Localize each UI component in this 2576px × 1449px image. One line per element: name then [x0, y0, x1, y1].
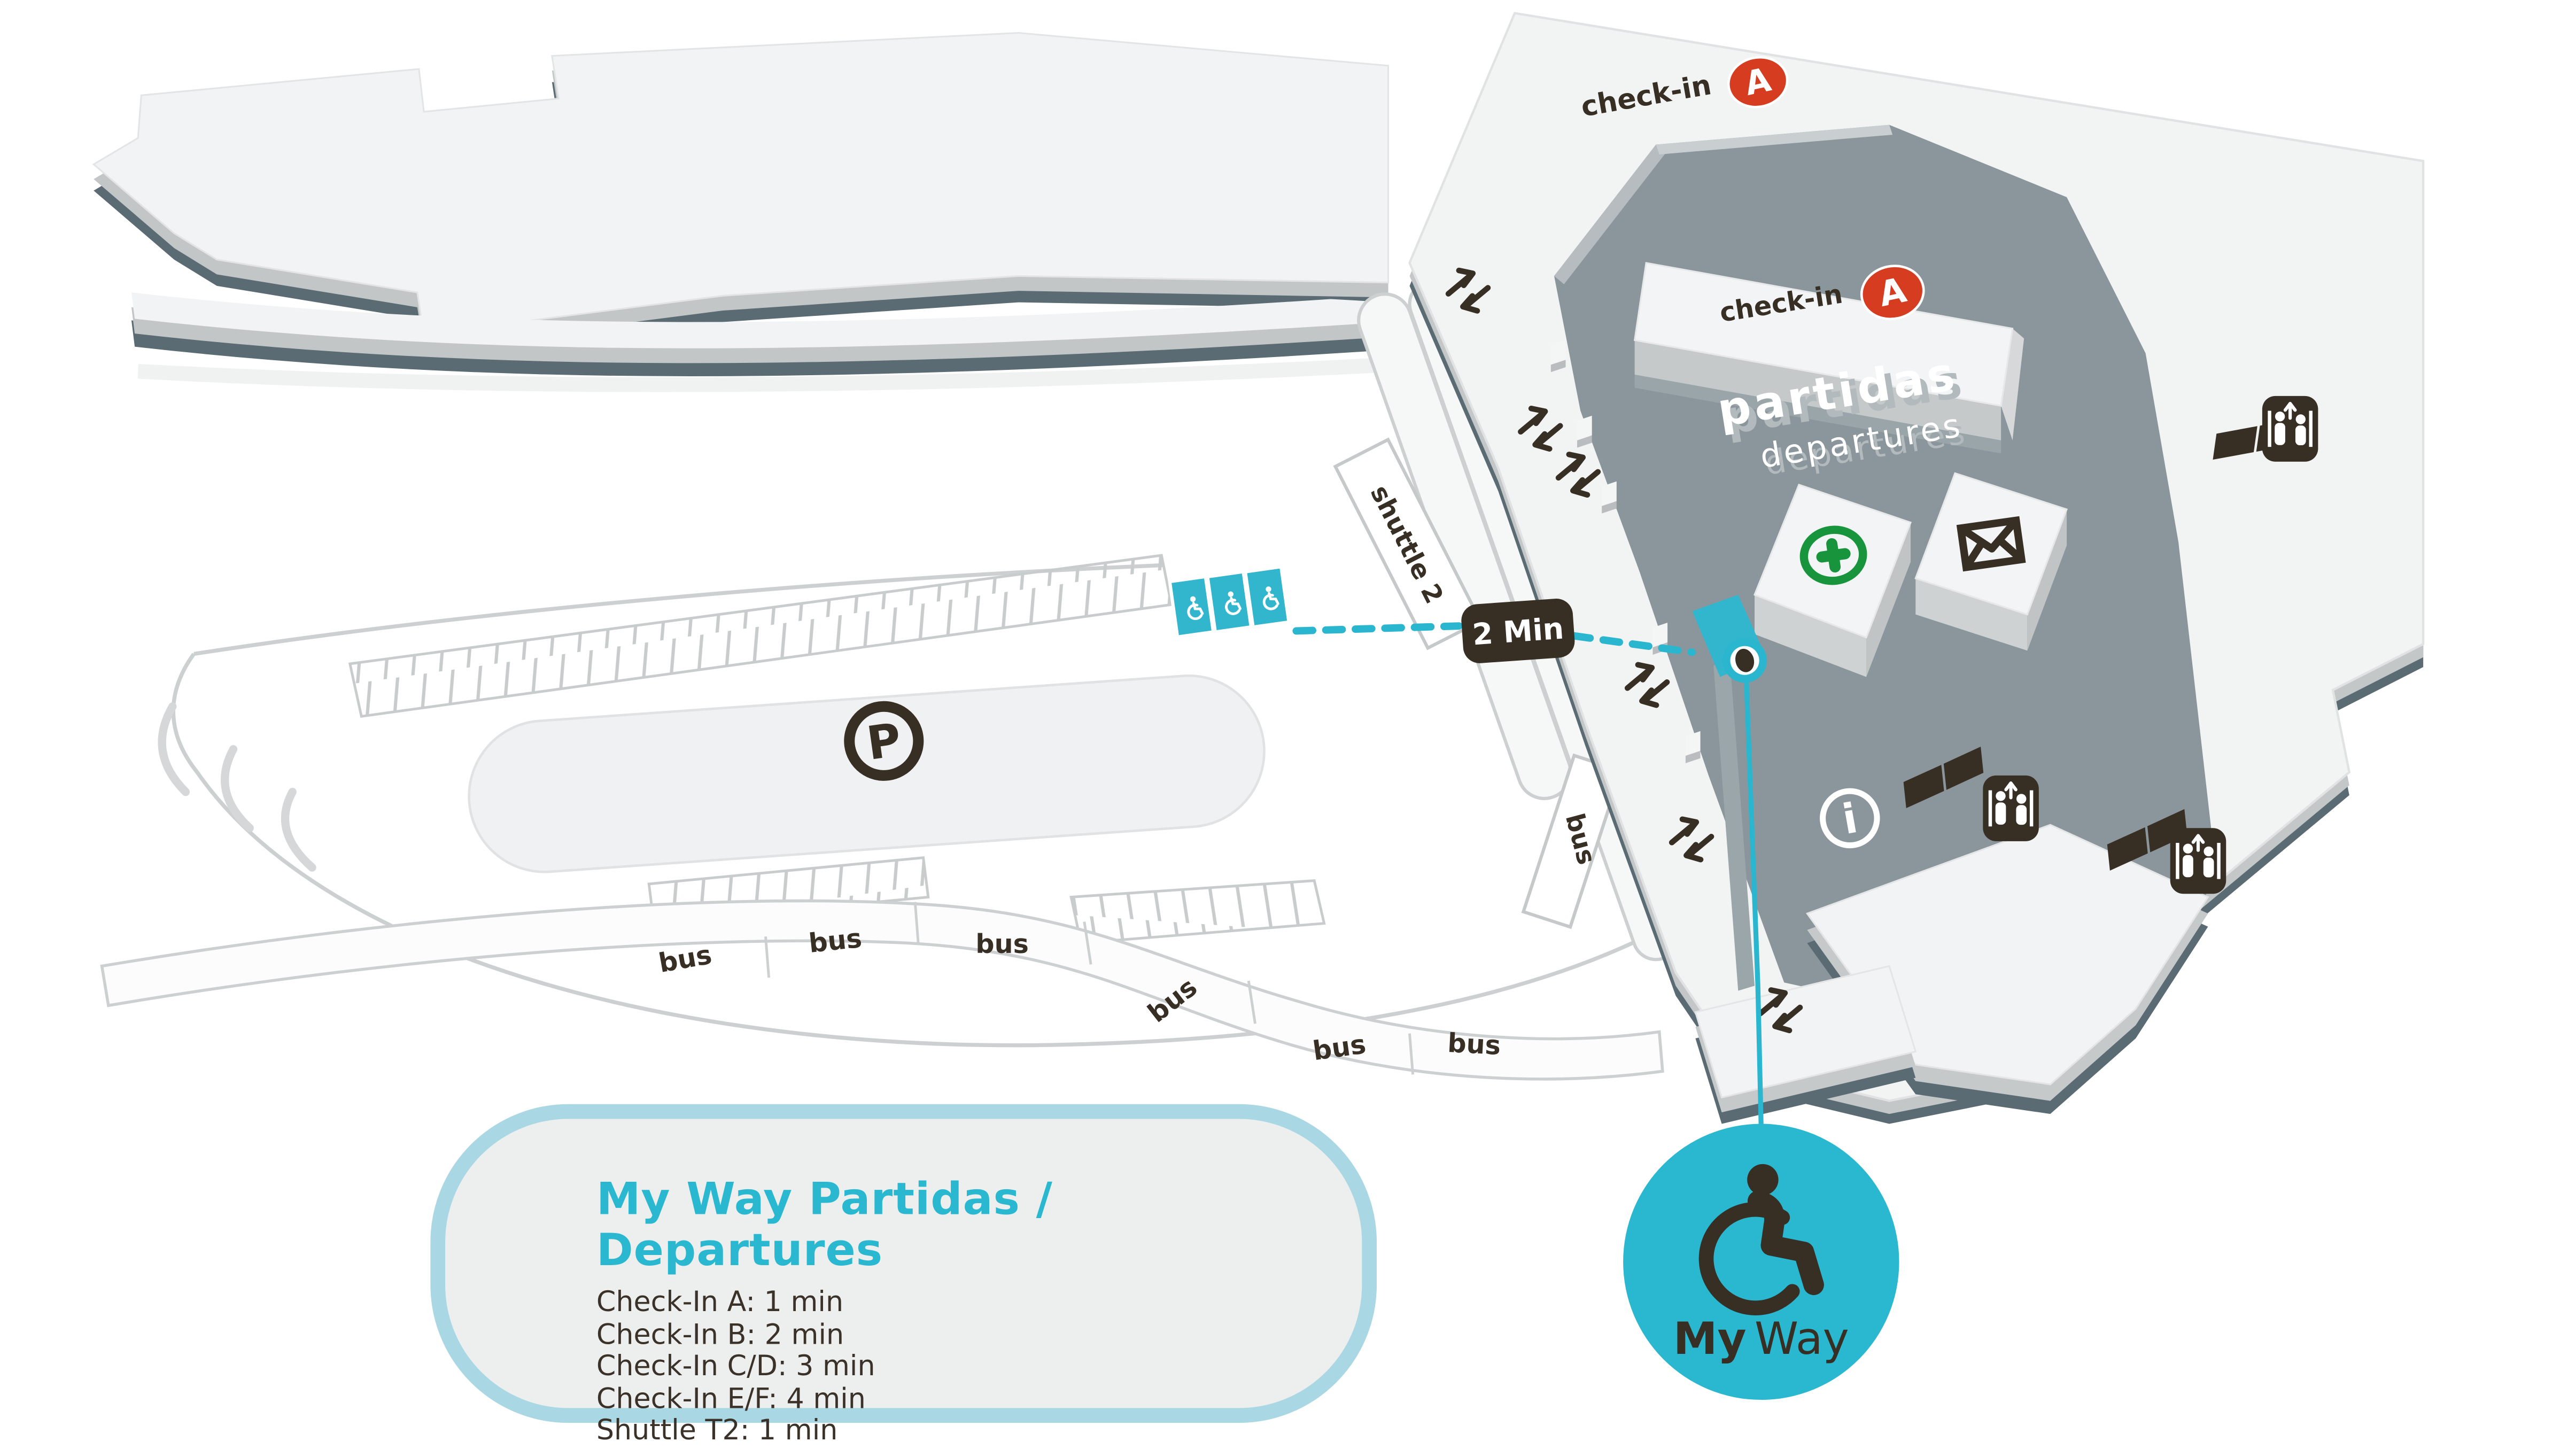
- pillar: [1602, 482, 1617, 514]
- parking-symbol: P: [864, 713, 904, 771]
- bus-stop-label: bus: [807, 923, 863, 959]
- bus-road: bus bus bus bus bus bus: [102, 901, 1663, 1079]
- myway-label-way: Way: [1755, 1313, 1849, 1365]
- accessible-parking-bays: [1170, 567, 1289, 637]
- pillar: [1686, 731, 1701, 763]
- bus-stop-label: bus: [975, 928, 1028, 959]
- myway-label: MyWay: [1673, 1313, 1849, 1365]
- myway-label-my: My: [1673, 1313, 1747, 1365]
- myway-badge: MyWay: [1623, 1124, 1899, 1400]
- legend-item: Check-In E/F: 4 min: [596, 1385, 1313, 1417]
- legend-card: My Way Partidas / Departures Check-In A:…: [430, 1104, 1377, 1423]
- route-time-badge: 2 Min: [1460, 598, 1576, 664]
- legend-item: Check-In A: 1 min: [596, 1288, 1313, 1320]
- airside-building: [94, 33, 1388, 384]
- elevator-icon: [2170, 828, 2226, 894]
- legend-item: Check-In B: 2 min: [596, 1320, 1313, 1352]
- legend-item: Shuttle T2: 1 min: [596, 1417, 1313, 1449]
- elevator-icon: [1983, 776, 2039, 841]
- legend-title: My Way Partidas / Departures: [596, 1175, 1313, 1277]
- bus-stop-label: bus: [1447, 1027, 1501, 1061]
- pillar: [1577, 416, 1592, 448]
- legend-item: Check-In C/D: 3 min: [596, 1352, 1313, 1384]
- elevator-icon: [2262, 396, 2318, 462]
- pillar: [1551, 340, 1566, 372]
- airport-map-stage: P bus bus bus bus bus bus shuttle 2: [0, 0, 2576, 1448]
- meeting-point-marker: [1722, 638, 1767, 683]
- route-time-label: 2 Min: [1471, 611, 1565, 652]
